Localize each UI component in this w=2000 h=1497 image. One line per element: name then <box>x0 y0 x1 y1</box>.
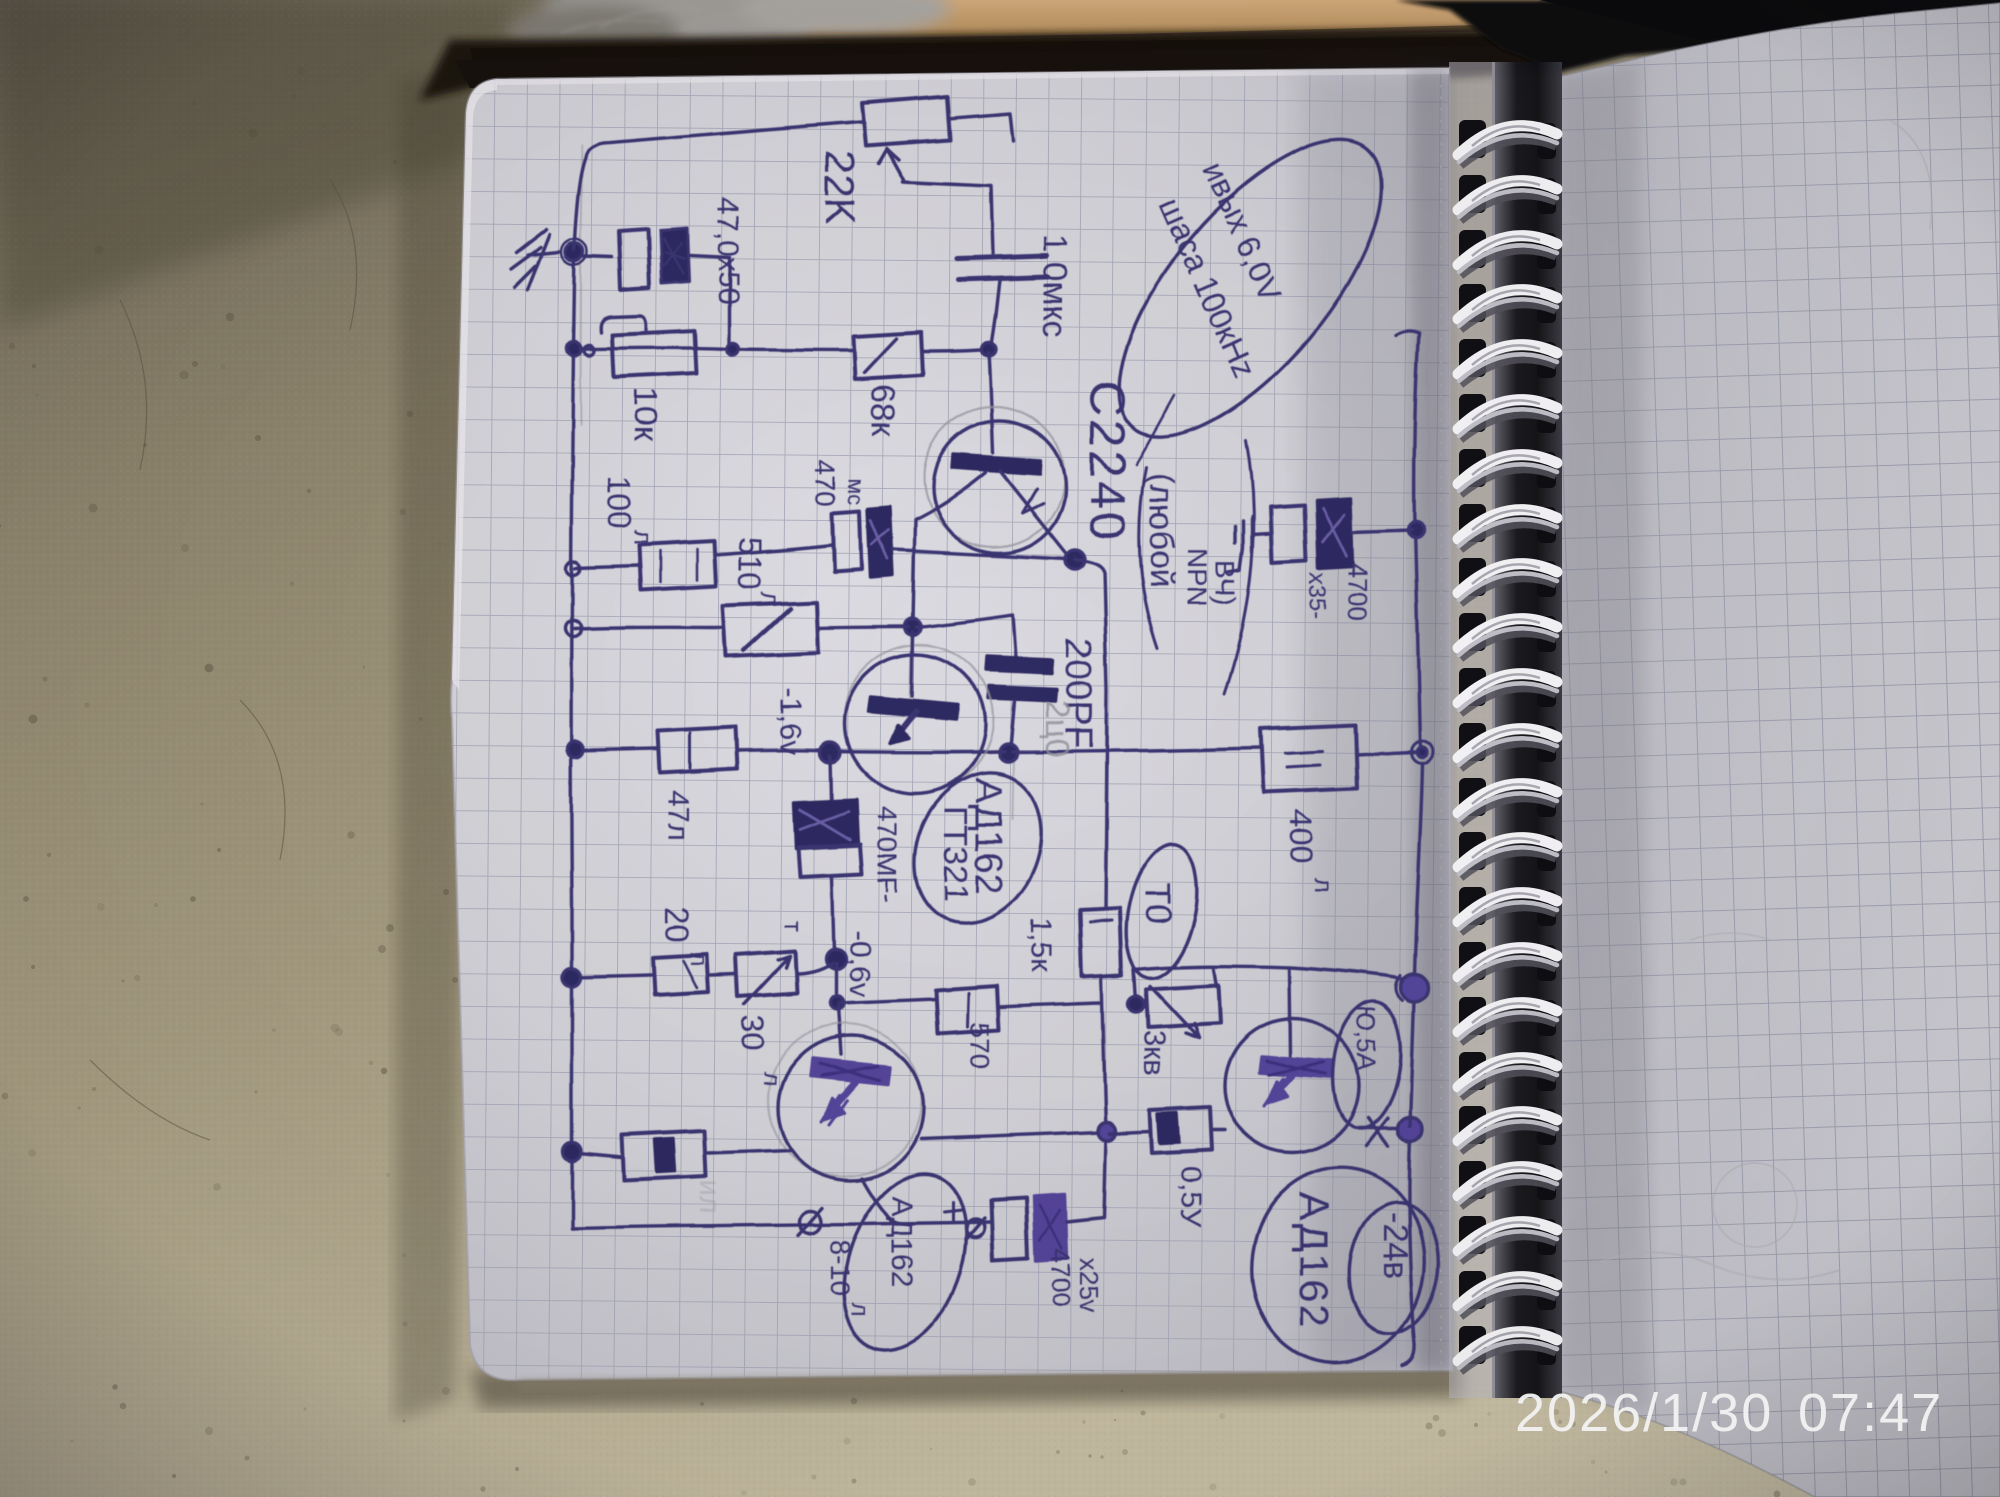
svg-text:07:47: 07:47 <box>1798 1383 1943 1443</box>
svg-text:2026/1/30: 2026/1/30 <box>1515 1383 1773 1443</box>
